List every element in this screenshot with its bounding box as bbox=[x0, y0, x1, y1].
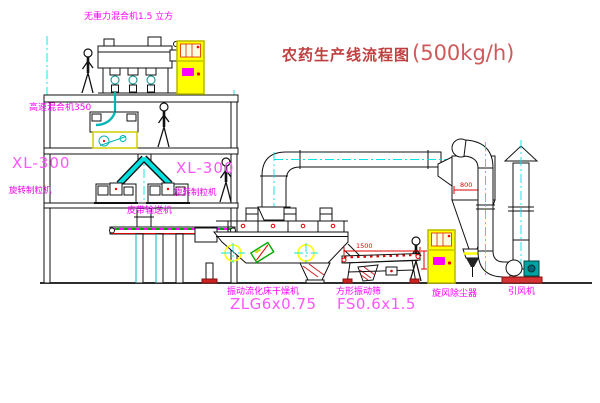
granulator-feed-duct bbox=[119, 154, 170, 184]
high-speed-mixer bbox=[90, 112, 138, 148]
label-sieve-model: FS0.6x1.5 bbox=[337, 297, 416, 312]
title-text: 农药生产线流程图 bbox=[282, 48, 410, 63]
label-dryer-model: ZLG6x0.75 bbox=[230, 297, 317, 312]
label-xl300-left-name: 旋转制粒机 bbox=[9, 187, 52, 196]
label-high-speed-mixer: 高速混合机350 bbox=[29, 104, 91, 113]
label-xl300-center-name: 旋转制粒机 bbox=[174, 189, 217, 198]
label-belt-conveyor: 皮带输送机 bbox=[127, 207, 172, 216]
cad-flow-diagram: 无重力混合机1.5 立方 农药生产线流程图 (500kg/h) 高速混合机350… bbox=[0, 0, 600, 403]
control-cabinet-2 bbox=[428, 230, 455, 283]
label-gravity-mixer: 无重力混合机1.5 立方 bbox=[84, 13, 173, 22]
label-xl300-left-model: XL-300 bbox=[12, 156, 70, 171]
dimension-cyclone-width: 800 bbox=[460, 182, 472, 189]
granulator-left bbox=[94, 183, 138, 203]
label-xl300-center-model: XL-300 bbox=[176, 161, 234, 176]
person-figure-1 bbox=[82, 49, 93, 93]
title-capacity: (500kg/h) bbox=[412, 44, 514, 63]
label-fan: 引风机 bbox=[508, 288, 535, 297]
label-cyclone: 旋风除尘器 bbox=[432, 290, 477, 299]
diagram-title: 农药生产线流程图 (500kg/h) bbox=[282, 44, 514, 63]
dimension-sieve-width: 1500 bbox=[356, 243, 373, 250]
person-figure-2 bbox=[158, 103, 169, 147]
control-cabinet-1 bbox=[177, 41, 204, 94]
